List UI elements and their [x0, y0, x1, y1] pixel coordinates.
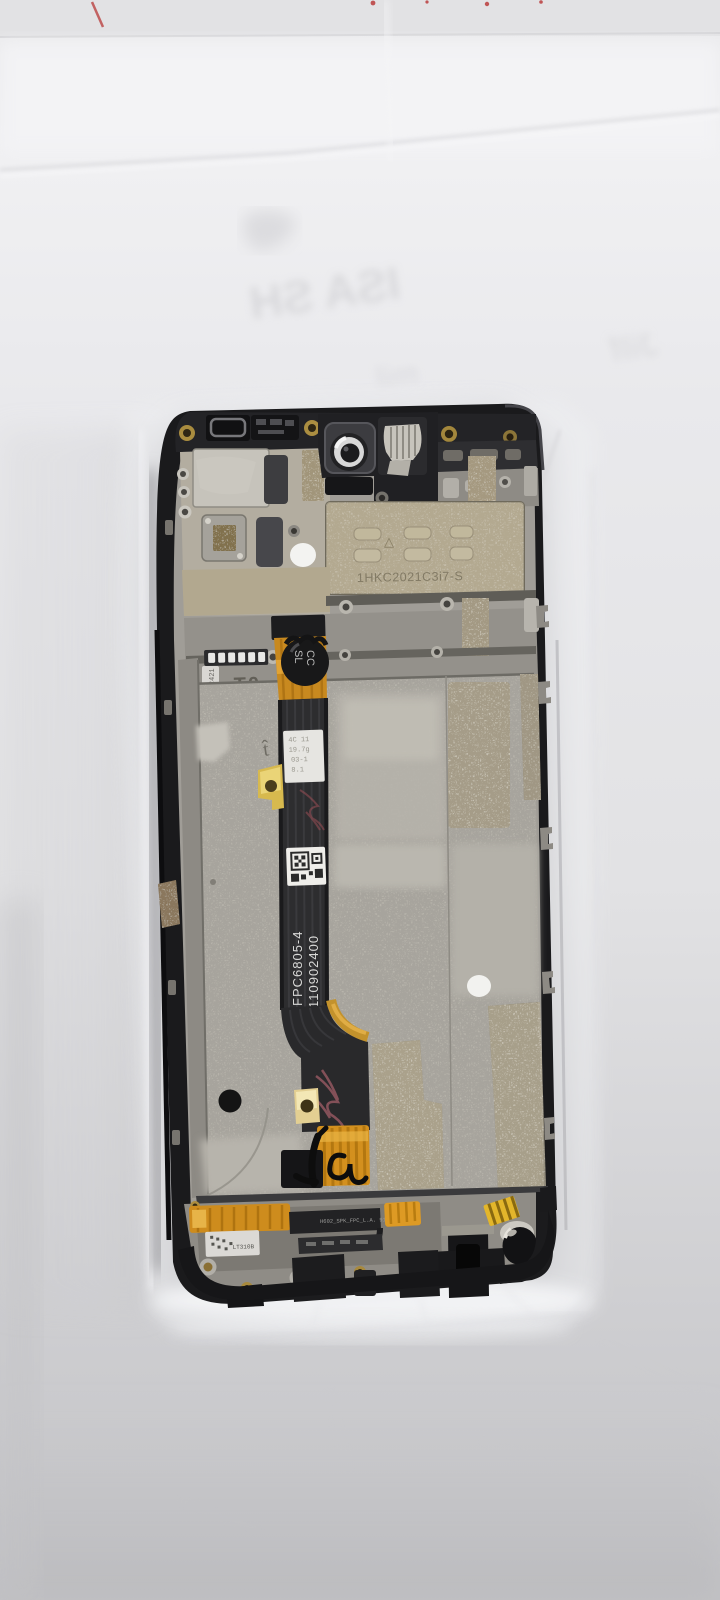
svg-text:SL: SL — [292, 650, 304, 663]
svg-text:△: △ — [384, 534, 394, 549]
svg-text:19.7g: 19.7g — [289, 746, 310, 755]
svg-text:mil: mil — [373, 356, 421, 395]
svg-text:FPC6805-4: FPC6805-4 — [290, 931, 305, 1006]
svg-text:8.1: 8.1 — [291, 766, 304, 774]
svg-text:Jilf: Jilf — [607, 325, 662, 370]
svg-text:03-1: 03-1 — [291, 756, 308, 765]
svg-text:1HKC2021C3i7-S: 1HKC2021C3i7-S — [357, 569, 464, 585]
svg-text:LT310B: LT310B — [232, 1243, 254, 1251]
svg-text:CC: CC — [304, 650, 316, 666]
svg-text:110902400: 110902400 — [306, 935, 321, 1008]
svg-text:4C 11: 4C 11 — [288, 736, 309, 745]
